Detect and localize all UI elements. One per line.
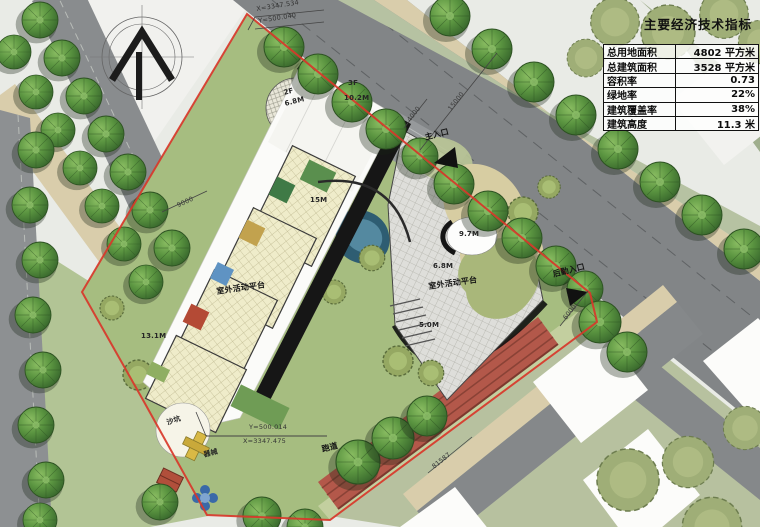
- coordinate-bottom-y: Y=500.014: [249, 424, 287, 431]
- table-row: 总建筑面积 3528 平方米: [604, 58, 758, 72]
- site-plan: X=3347.534 Y=500.040 Y=500.014 X=3347.47…: [0, 0, 760, 527]
- row-label: 总建筑面积: [604, 59, 676, 72]
- row-value: 0.73: [676, 74, 758, 87]
- row-label: 建筑覆盖率: [604, 103, 676, 116]
- indicator-table-title: 主要经济技术指标: [644, 14, 752, 33]
- label-height-6-8m: 6.8M: [433, 263, 453, 271]
- label-building-3f: 3F: [348, 80, 358, 88]
- row-value: 4802 平方米: [676, 45, 758, 58]
- row-label: 总用地面积: [604, 45, 676, 58]
- label-height-13-1m: 13.1M: [141, 333, 166, 341]
- row-label: 容积率: [604, 74, 676, 87]
- row-value: 38%: [676, 103, 758, 116]
- table-row: 总用地面积 4802 平方米: [604, 45, 758, 58]
- table-row: 建筑覆盖率 38%: [604, 102, 758, 116]
- coordinate-bottom-x: X=3347.475: [243, 438, 286, 445]
- row-value: 22%: [676, 88, 758, 101]
- row-label: 绿地率: [604, 88, 676, 101]
- table-row: 容积率 0.73: [604, 73, 758, 87]
- table-row: 绿地率 22%: [604, 87, 758, 101]
- indicator-table: 总用地面积 4802 平方米 总建筑面积 3528 平方米 容积率 0.73 绿…: [603, 44, 759, 131]
- label-height-9-7m: 9.7M: [459, 231, 479, 239]
- row-value: 3528 平方米: [676, 59, 758, 72]
- label-building-3f-height: 10.2M: [344, 95, 369, 103]
- row-label: 建筑高度: [604, 117, 676, 130]
- table-row: 建筑高度 11.3 米: [604, 116, 758, 130]
- row-value: 11.3 米: [676, 117, 758, 130]
- label-height-15m: 15M: [310, 197, 327, 205]
- label-height-5-0m: 5.0M: [419, 322, 439, 330]
